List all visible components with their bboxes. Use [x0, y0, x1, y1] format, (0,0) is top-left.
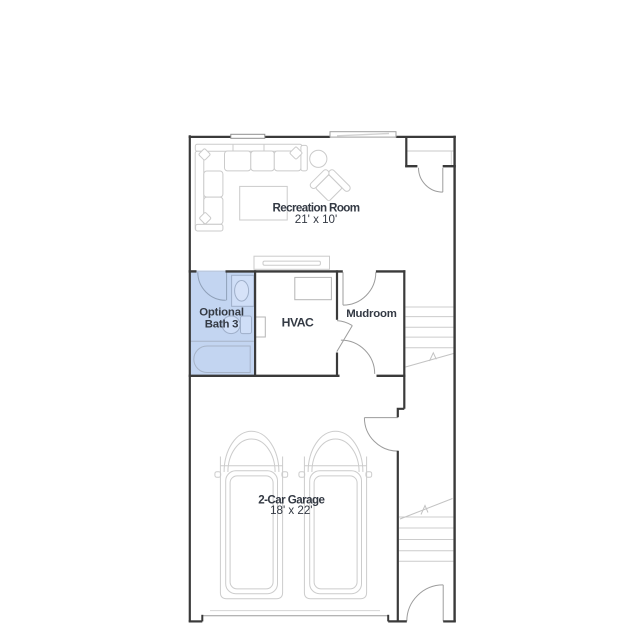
svg-text:18' x 22': 18' x 22'	[270, 504, 312, 517]
svg-text:HVAC: HVAC	[282, 316, 314, 330]
svg-text:Optional: Optional	[199, 306, 244, 318]
svg-text:Mudroom: Mudroom	[346, 308, 397, 320]
svg-text:21' x 10': 21' x 10'	[295, 213, 337, 226]
svg-text:Bath 3: Bath 3	[205, 319, 239, 331]
